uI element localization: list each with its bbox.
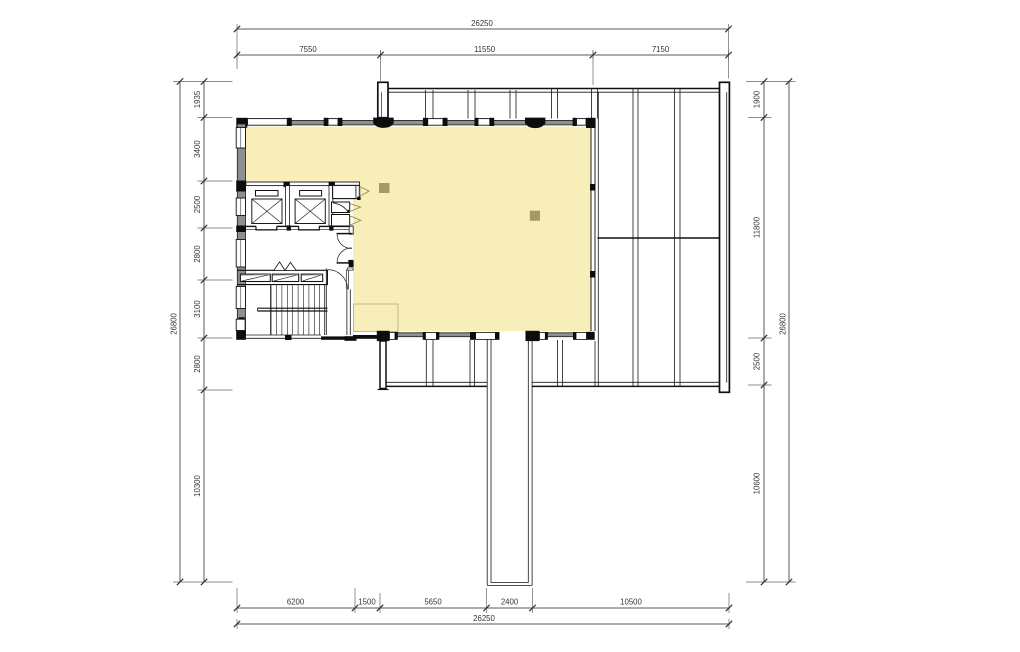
svg-text:2800: 2800	[193, 355, 202, 373]
svg-text:5650: 5650	[424, 598, 442, 607]
svg-text:2400: 2400	[501, 598, 519, 607]
svg-text:3100: 3100	[193, 300, 202, 318]
svg-text:10500: 10500	[620, 598, 642, 607]
svg-text:26800: 26800	[170, 312, 179, 334]
svg-text:2500: 2500	[193, 195, 202, 213]
svg-text:11550: 11550	[474, 45, 496, 54]
svg-text:2500: 2500	[753, 352, 762, 370]
svg-text:26800: 26800	[779, 312, 788, 334]
svg-text:7550: 7550	[299, 45, 317, 54]
svg-text:7150: 7150	[652, 45, 670, 54]
svg-text:1935: 1935	[193, 90, 202, 108]
svg-text:11800: 11800	[753, 216, 762, 238]
svg-text:26250: 26250	[471, 19, 493, 28]
svg-text:1900: 1900	[753, 90, 762, 108]
svg-text:26250: 26250	[473, 614, 495, 623]
svg-text:1500: 1500	[358, 598, 376, 607]
svg-text:6200: 6200	[287, 598, 305, 607]
svg-text:10300: 10300	[193, 474, 202, 496]
svg-text:10600: 10600	[753, 472, 762, 494]
svg-text:3400: 3400	[193, 140, 202, 158]
svg-text:2800: 2800	[193, 245, 202, 263]
